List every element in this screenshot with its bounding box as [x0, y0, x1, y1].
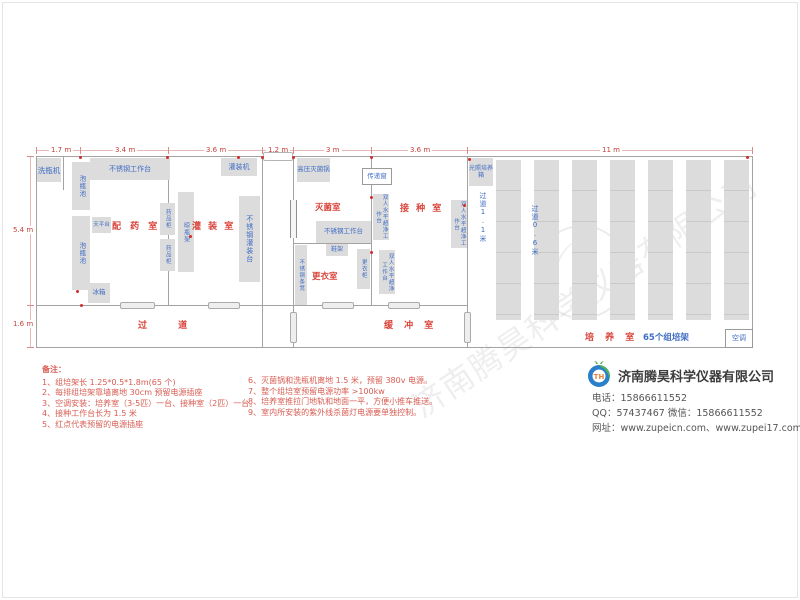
note-item: 8、培养室推拉门地轨和地面一平，方便小推车推送。: [248, 397, 437, 408]
soak-pool-1: 泡瓶池: [72, 162, 90, 210]
company-phone: 电话：15866611552: [592, 390, 687, 404]
power-outlet-dot: [76, 290, 79, 293]
clean-bench-3: 双人水平超净工作台: [379, 250, 395, 294]
fridge: 冰箱: [88, 283, 110, 303]
room-label-inoculation: 接 种 室: [400, 201, 443, 214]
power-outlet-dot: [237, 156, 240, 159]
company-name: 济南腾昊科学仪器有限公司: [618, 366, 774, 385]
dimension-tick: [752, 147, 753, 154]
aisle-label-narrow: 过道0.6米: [530, 205, 540, 295]
culture-rack-column: [572, 160, 597, 320]
culture-rack-column: [610, 160, 635, 320]
power-outlet-dot: [370, 251, 373, 254]
room-label-buffer: 缓 冲 室: [384, 318, 437, 331]
dim-label-1: 1.7 m: [49, 146, 73, 154]
room-label-changing: 更衣室: [312, 270, 338, 282]
aisle-label-wide: 过道1.1米: [478, 192, 488, 282]
notes-title: 备注：: [42, 365, 257, 376]
power-outlet-dot: [79, 156, 82, 159]
note-item: 3、空调安装：培养室（3-5匹）一台、接种室（2匹）一台。: [42, 399, 257, 410]
note-item: 4、接种工作台长为 1.5 米: [42, 409, 257, 420]
door-filling: [208, 302, 240, 309]
autoclave: 高压灭菌锅: [297, 158, 330, 182]
power-outlet-dot: [166, 156, 169, 159]
door-prep: [120, 302, 155, 309]
dimension-tick: [80, 147, 81, 154]
door-inoculation: [388, 302, 420, 309]
note-item: 5、红点代表预留的电源插座: [42, 420, 257, 431]
wall-left: [36, 156, 37, 348]
notes-column-2: 6、灭菌锅和洗瓶机离地 1.5 米，预留 380v 电源。 7、整个组培室预留电…: [248, 376, 437, 418]
door-changing: [322, 302, 354, 309]
filling-machine: 灌装机: [221, 158, 257, 176]
power-outlet-dot: [463, 204, 466, 207]
clean-bench-2: 双人水平超净工作台: [451, 200, 467, 248]
dimension-tick: [371, 147, 372, 154]
locker: 更衣柜: [357, 249, 370, 289]
culture-rack-column: [496, 160, 521, 320]
company-logo-icon: TH: [585, 361, 613, 389]
power-outlet-dot: [370, 156, 373, 159]
room-label-culture: 培 养 室: [585, 330, 638, 343]
opening-top-gap: [263, 152, 293, 161]
company-logo: TH: [585, 361, 613, 389]
medicine-cabinet-1: 药品柜: [160, 203, 175, 235]
culture-rack-column: [648, 160, 673, 320]
door-culture-sliding: [464, 312, 471, 343]
dimension-tick: [36, 147, 37, 154]
power-outlet-dot: [468, 158, 471, 161]
dim-label-left-1: 5.4 m: [11, 226, 35, 234]
dim-label-5: 3 m: [324, 146, 342, 154]
dim-label-6: 3.6 m: [408, 146, 432, 154]
room-label-corridor: 过 道: [138, 318, 201, 331]
page-border: [2, 2, 798, 598]
bottle-drying-rack: 晾瓶架: [178, 192, 194, 273]
door-buffer: [290, 312, 297, 343]
window-sterilize: [290, 200, 297, 238]
dimension-tick: [27, 156, 34, 157]
wall-bottom: [36, 347, 753, 348]
power-outlet-dot: [746, 156, 749, 159]
dimension-tick: [467, 147, 468, 154]
shoe-rack: 鞋架: [326, 244, 348, 256]
transfer-window: 传递窗: [362, 168, 392, 185]
culture-rack-count: 65个组培架: [643, 331, 689, 343]
dimension-tick: [27, 347, 34, 348]
room-label-sterilize: 灭菌室: [315, 201, 341, 213]
air-conditioner: 空调: [725, 329, 753, 348]
light-incubator: 光照培养箱: [469, 158, 493, 186]
note-item: 7、整个组培室预留电源功率 >100kw: [248, 387, 437, 398]
dim-label-3: 3.6 m: [204, 146, 228, 154]
clean-bench-1: 双人水平超净工作台: [373, 194, 389, 240]
note-item: 6、灭菌锅和洗瓶机离地 1.5 米，预留 380v 电源。: [248, 376, 437, 387]
wall-top: [36, 156, 753, 157]
bottle-washer: 洗瓶机: [37, 158, 61, 182]
wall-filling-right: [262, 156, 263, 348]
dimension-line-top: [36, 150, 753, 151]
culture-rack-column: [686, 160, 711, 320]
power-outlet-dot: [292, 156, 295, 159]
room-label-prep: 配 药 室: [112, 219, 160, 232]
soak-pool-2: 泡瓶池: [72, 216, 90, 290]
ss-workbench-prep: 不锈钢工作台: [90, 158, 170, 180]
balance-table: 天平台: [92, 217, 111, 233]
company-qq-wechat: QQ：57437467 微信：15866611552: [592, 405, 763, 419]
wall-washer-nook: [63, 156, 64, 190]
power-outlet-dot: [261, 156, 264, 159]
note-item: 2、每排组培架靠墙离地 30cm 预留电源插座: [42, 388, 257, 399]
svg-text:TH: TH: [594, 373, 605, 381]
wall-right: [752, 156, 753, 348]
power-outlet-dot: [80, 304, 83, 307]
power-outlet-dot: [370, 196, 373, 199]
ss-bench: 不锈钢条凳: [295, 245, 307, 305]
dimension-tick: [27, 305, 34, 306]
note-item: 1、组培架长 1.25*0.5*1.8m(65 个): [42, 378, 257, 389]
dimension-tick: [168, 147, 169, 154]
power-outlet-dot: [189, 235, 192, 238]
ss-workbench-sterilize: 不锈钢工作台: [316, 221, 371, 243]
floor-plan-page: 济南腾昊科学仪器有限公司 1.7 m 3.4 m 3.6 m 1.2 m 3 m…: [0, 0, 800, 600]
dim-label-left-2: 1.6 m: [11, 320, 35, 328]
dim-label-7: 11 m: [600, 146, 622, 154]
ss-filling-table: 不锈钢灌装台: [239, 196, 260, 282]
dimension-tick: [293, 147, 294, 154]
room-label-filling: 灌 装 室: [192, 219, 235, 232]
dim-label-2: 3.4 m: [113, 146, 137, 154]
culture-rack-column: [724, 160, 749, 320]
company-web: 网址：www.zupeicn.com、www.zupei17.com: [592, 420, 800, 434]
notes-column-1: 备注： 1、组培架长 1.25*0.5*1.8m(65 个) 2、每排组培架靠墙…: [42, 365, 257, 430]
medicine-cabinet-2: 药品柜: [160, 239, 175, 271]
note-item: 9、室内所安装的紫外线杀菌灯电源要单独控制。: [248, 408, 437, 419]
